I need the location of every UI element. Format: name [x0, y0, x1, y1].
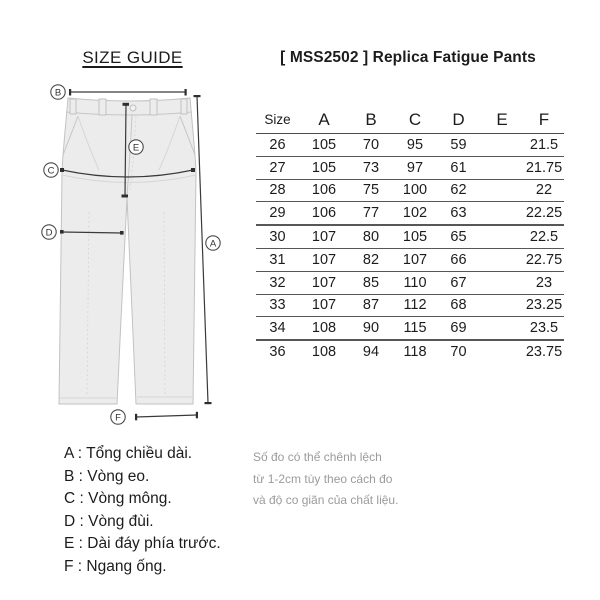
callout-a: A	[206, 236, 220, 250]
table-cell: 69	[437, 320, 480, 336]
pants-drawing	[59, 98, 196, 404]
table-cell: 80	[349, 229, 393, 245]
table-cell: 106	[299, 205, 349, 221]
table-row: 30107801056522.5	[256, 226, 564, 249]
table-cell: 23.5	[524, 320, 564, 336]
table-header-cell: A	[299, 110, 349, 130]
pants-outline	[59, 98, 196, 404]
table-cell: 95	[393, 137, 437, 153]
belt-loop	[181, 99, 187, 114]
note-line: và độ co giãn của chất liệu.	[253, 490, 398, 512]
belt-loop	[150, 99, 157, 115]
measure-line-b	[69, 89, 187, 96]
table-row: 2710573976121.75	[256, 157, 564, 180]
table-row: 32107851106723	[256, 272, 564, 295]
svg-text:A: A	[210, 238, 217, 249]
table-cell: 31	[256, 252, 299, 268]
table-cell: 22.25	[524, 205, 564, 221]
table-cell: 85	[349, 275, 393, 291]
size-guide-page: SIZE GUIDE [ MSS2502 ] Replica Fatigue P…	[0, 0, 600, 600]
belt-loop	[70, 99, 76, 114]
table-cell: 70	[437, 344, 480, 360]
table-row: 2610570955921.5	[256, 134, 564, 157]
legend-item-c: C : Vòng mông.	[64, 488, 221, 511]
table-cell: 107	[299, 275, 349, 291]
table-cell: 63	[437, 205, 480, 221]
table-cell: 70	[349, 137, 393, 153]
callout-e: E	[129, 140, 143, 154]
callout-b: B	[51, 85, 65, 99]
callout-d: D	[42, 225, 56, 239]
pants-diagram: B A C D E F	[20, 80, 230, 425]
table-cell: 21.75	[524, 160, 564, 176]
table-cell: 36	[256, 344, 299, 360]
table-cell: 115	[393, 320, 437, 336]
table-cell: 61	[437, 160, 480, 176]
table-cell: 100	[393, 182, 437, 198]
measure-line-a	[194, 95, 212, 404]
svg-text:E: E	[133, 142, 139, 153]
table-cell: 23.25	[524, 297, 564, 313]
belt-loop	[99, 99, 106, 115]
table-row: 29106771026322.25	[256, 202, 564, 226]
table-cell: 94	[349, 344, 393, 360]
waist-button	[130, 105, 136, 111]
svg-text:C: C	[48, 165, 55, 176]
callout-c: C	[44, 163, 58, 177]
table-cell: 29	[256, 205, 299, 221]
table-cell: 107	[299, 297, 349, 313]
table-header-cell: Size	[256, 112, 299, 127]
table-cell: 107	[393, 252, 437, 268]
svg-text:F: F	[115, 412, 121, 423]
table-cell: 67	[437, 275, 480, 291]
table-cell: 102	[393, 205, 437, 221]
table-cell: 22.75	[524, 252, 564, 268]
legend-item-e: E : Dài đáy phía trước.	[64, 533, 221, 556]
table-cell: 65	[437, 229, 480, 245]
table-cell: 62	[437, 182, 480, 198]
table-cell: 108	[299, 344, 349, 360]
table-cell: 66	[437, 252, 480, 268]
measurement-legend: A : Tổng chiều dài. B : Vòng eo. C : Vòn…	[64, 443, 221, 579]
table-header-cell: C	[393, 110, 437, 130]
table-cell: 77	[349, 205, 393, 221]
measurement-note: Số đo có thể chênh lệch từ 1-2cm tùy the…	[253, 447, 398, 512]
table-cell: 112	[393, 297, 437, 313]
table-row: 31107821076622.75	[256, 249, 564, 272]
table-cell: 23.75	[524, 344, 564, 360]
table-cell: 118	[393, 344, 437, 360]
svg-text:D: D	[46, 227, 53, 238]
table-cell: 97	[393, 160, 437, 176]
table-cell: 90	[349, 320, 393, 336]
table-cell: 21.5	[524, 137, 564, 153]
table-cell: 33	[256, 297, 299, 313]
size-table: Size A B C D E F 2610570955921.527105739…	[256, 106, 564, 363]
table-cell: 22.5	[524, 229, 564, 245]
table-cell: 73	[349, 160, 393, 176]
legend-item-d: D : Vòng đùi.	[64, 511, 221, 534]
table-cell: 75	[349, 182, 393, 198]
product-title: [ MSS2502 ] Replica Fatigue Pants	[278, 49, 538, 67]
table-cell: 32	[256, 275, 299, 291]
size-guide-title: SIZE GUIDE	[40, 48, 225, 68]
table-row: 28106751006222	[256, 180, 564, 203]
table-cell: 27	[256, 160, 299, 176]
callout-f: F	[111, 410, 125, 424]
table-cell: 30	[256, 229, 299, 245]
table-header-cell: E	[480, 110, 524, 130]
table-cell: 23	[524, 275, 564, 291]
legend-item-f: F : Ngang ống.	[64, 556, 221, 579]
table-cell: 34	[256, 320, 299, 336]
table-cell: 28	[256, 182, 299, 198]
table-cell: 68	[437, 297, 480, 313]
table-cell: 105	[299, 160, 349, 176]
table-cell: 105	[299, 137, 349, 153]
table-header: Size A B C D E F	[256, 106, 564, 134]
table-cell: 107	[299, 229, 349, 245]
table-cell: 110	[393, 275, 437, 291]
svg-text:B: B	[55, 87, 61, 98]
note-line: từ 1-2cm tùy theo cách đo	[253, 469, 398, 491]
table-cell: 87	[349, 297, 393, 313]
table-cell: 106	[299, 182, 349, 198]
table-cell: 26	[256, 137, 299, 153]
table-row: 34108901156923.5	[256, 317, 564, 341]
table-row: 33107871126823.25	[256, 295, 564, 318]
table-header-cell: D	[437, 110, 480, 130]
table-cell: 105	[393, 229, 437, 245]
table-cell: 108	[299, 320, 349, 336]
size-table-rows: 2610570955921.52710573976121.75281067510…	[256, 134, 564, 363]
table-cell: 82	[349, 252, 393, 268]
table-cell: 22	[524, 182, 564, 198]
table-cell: 59	[437, 137, 480, 153]
table-cell: 107	[299, 252, 349, 268]
table-header-cell: B	[349, 110, 393, 130]
note-line: Số đo có thể chênh lệch	[253, 447, 398, 469]
table-header-cell: F	[524, 110, 564, 130]
legend-item-b: B : Vòng eo.	[64, 466, 221, 489]
table-row: 36108941187023.75	[256, 341, 564, 363]
legend-item-a: A : Tổng chiều dài.	[64, 443, 221, 466]
measure-line-f	[135, 412, 198, 421]
